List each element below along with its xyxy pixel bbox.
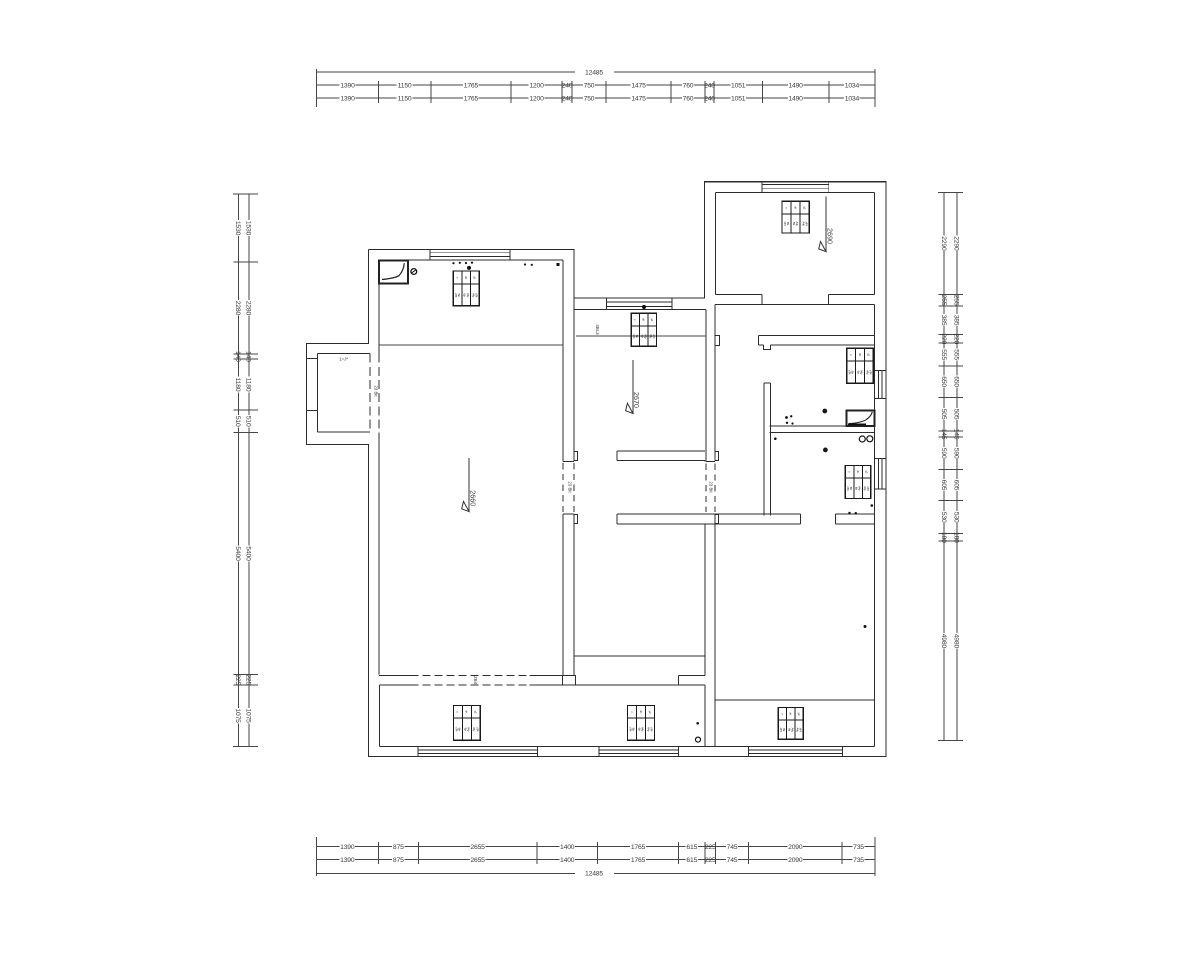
svg-text:1034: 1034 bbox=[845, 95, 860, 102]
svg-text:255: 255 bbox=[940, 295, 947, 306]
svg-text:1150: 1150 bbox=[398, 82, 412, 89]
svg-text:1400: 1400 bbox=[560, 857, 575, 864]
svg-text:555: 555 bbox=[940, 349, 947, 360]
svg-text:xT4: xT4 bbox=[804, 222, 808, 227]
svg-text:1475: 1475 bbox=[631, 82, 646, 89]
svg-text:180: 180 bbox=[940, 532, 947, 543]
svg-text:xT4: xT4 bbox=[649, 727, 653, 732]
svg-text:530: 530 bbox=[953, 512, 960, 523]
svg-text:xT4: xT4 bbox=[475, 727, 479, 732]
svg-text:385: 385 bbox=[940, 315, 947, 326]
svg-text:2290: 2290 bbox=[953, 236, 960, 251]
svg-text:505: 505 bbox=[953, 409, 960, 420]
svg-text:xT4: xT4 bbox=[799, 728, 803, 733]
svg-text:12485: 12485 bbox=[585, 871, 603, 878]
svg-text:1765: 1765 bbox=[631, 844, 646, 851]
svg-text:23 Bit: 23 Bit bbox=[568, 481, 573, 493]
svg-text:2090: 2090 bbox=[788, 844, 803, 851]
svg-text:240: 240 bbox=[562, 95, 573, 102]
svg-text:220: 220 bbox=[940, 333, 947, 344]
svg-text:875: 875 bbox=[393, 857, 404, 864]
svg-text:615: 615 bbox=[686, 857, 697, 864]
svg-text:180: 180 bbox=[953, 532, 960, 543]
svg-text:ZBit: ZBit bbox=[473, 676, 478, 685]
svg-text:23 Bit: 23 Bit bbox=[374, 385, 379, 397]
svg-text:385: 385 bbox=[953, 315, 960, 326]
svg-text:1=J*: 1=J* bbox=[339, 357, 348, 362]
svg-text:745: 745 bbox=[727, 844, 738, 851]
svg-text:225: 225 bbox=[245, 674, 252, 685]
svg-text:1765: 1765 bbox=[631, 857, 646, 864]
svg-text:2660: 2660 bbox=[468, 490, 477, 506]
svg-text:240: 240 bbox=[562, 82, 573, 89]
svg-text:510: 510 bbox=[245, 416, 252, 427]
svg-text:735: 735 bbox=[853, 844, 864, 851]
svg-text:2655: 2655 bbox=[470, 844, 485, 851]
svg-text:1034: 1034 bbox=[845, 82, 860, 89]
svg-text:1765: 1765 bbox=[464, 95, 479, 102]
svg-text:530: 530 bbox=[940, 512, 947, 523]
svg-text:145: 145 bbox=[940, 429, 947, 440]
svg-text:505: 505 bbox=[940, 409, 947, 420]
svg-text:615: 615 bbox=[686, 844, 697, 851]
svg-text:1530: 1530 bbox=[234, 221, 241, 236]
svg-text:4980: 4980 bbox=[940, 634, 947, 649]
svg-text:1180: 1180 bbox=[245, 378, 252, 392]
svg-text:140: 140 bbox=[234, 351, 241, 362]
svg-text:1180: 1180 bbox=[234, 378, 241, 392]
svg-text:1390: 1390 bbox=[340, 95, 355, 102]
svg-text:875: 875 bbox=[393, 844, 404, 851]
svg-text:5400: 5400 bbox=[234, 546, 241, 561]
svg-text:1200: 1200 bbox=[529, 82, 544, 89]
svg-text:2290: 2290 bbox=[940, 236, 947, 251]
svg-text:555: 555 bbox=[953, 349, 960, 360]
svg-text:2280: 2280 bbox=[234, 301, 241, 316]
svg-text:2090: 2090 bbox=[788, 857, 803, 864]
svg-text:1400: 1400 bbox=[560, 844, 575, 851]
svg-text:590: 590 bbox=[953, 448, 960, 459]
svg-text:1530: 1530 bbox=[245, 221, 252, 236]
svg-text:12485: 12485 bbox=[585, 69, 603, 76]
svg-text:140: 140 bbox=[245, 351, 252, 362]
svg-text:1490: 1490 bbox=[788, 82, 803, 89]
svg-text:255: 255 bbox=[953, 295, 960, 306]
svg-text:1390: 1390 bbox=[340, 844, 355, 851]
svg-text:1075: 1075 bbox=[245, 708, 252, 723]
svg-text:1475: 1475 bbox=[631, 95, 646, 102]
svg-text:4980: 4980 bbox=[953, 634, 960, 649]
svg-text:225: 225 bbox=[705, 844, 716, 851]
svg-text:xT4: xT4 bbox=[866, 486, 870, 491]
svg-text:145: 145 bbox=[953, 429, 960, 440]
svg-text:1075: 1075 bbox=[234, 708, 241, 723]
svg-text:5400: 5400 bbox=[245, 546, 252, 561]
svg-text:1490: 1490 bbox=[788, 95, 803, 102]
svg-text:745: 745 bbox=[727, 857, 738, 864]
svg-text:750: 750 bbox=[584, 82, 595, 89]
svg-text:240: 240 bbox=[704, 82, 715, 89]
svg-text:240: 240 bbox=[704, 95, 715, 102]
svg-text:590: 590 bbox=[940, 448, 947, 459]
svg-text:225: 225 bbox=[705, 857, 716, 864]
svg-text:760: 760 bbox=[683, 95, 694, 102]
svg-text:1051: 1051 bbox=[731, 82, 746, 89]
svg-text:23 Bit: 23 Bit bbox=[709, 481, 714, 493]
svg-text:2655: 2655 bbox=[470, 857, 485, 864]
svg-text:xT4: xT4 bbox=[869, 370, 873, 375]
svg-text:605: 605 bbox=[940, 480, 947, 491]
svg-text:225: 225 bbox=[234, 674, 241, 685]
svg-text:735: 735 bbox=[853, 857, 864, 864]
svg-text:1390: 1390 bbox=[340, 857, 355, 864]
svg-text:1150: 1150 bbox=[398, 95, 412, 102]
svg-text:2280: 2280 bbox=[245, 301, 252, 316]
svg-text:750: 750 bbox=[584, 95, 595, 102]
svg-text:2670: 2670 bbox=[632, 392, 641, 408]
svg-text:220: 220 bbox=[953, 333, 960, 344]
svg-text:xT4: xT4 bbox=[475, 293, 479, 298]
svg-text:4BL3: 4BL3 bbox=[595, 324, 600, 335]
svg-text:1765: 1765 bbox=[464, 82, 479, 89]
svg-text:605: 605 bbox=[953, 480, 960, 491]
svg-text:xT4: xT4 bbox=[652, 334, 656, 339]
svg-text:2690: 2690 bbox=[825, 228, 834, 244]
svg-text:1051: 1051 bbox=[731, 95, 746, 102]
svg-text:650: 650 bbox=[940, 376, 947, 387]
svg-text:650: 650 bbox=[953, 376, 960, 387]
svg-text:760: 760 bbox=[683, 82, 694, 89]
svg-text:1200: 1200 bbox=[529, 95, 544, 102]
svg-text:1390: 1390 bbox=[340, 82, 355, 89]
svg-text:510: 510 bbox=[234, 416, 241, 427]
